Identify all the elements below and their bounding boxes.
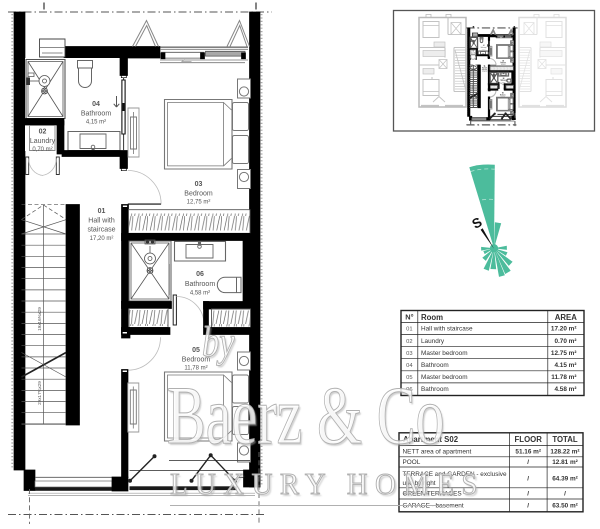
svg-text:Room: Room <box>421 313 443 322</box>
svg-text:01: 01 <box>406 327 412 333</box>
svg-text:AREA: AREA <box>555 313 577 322</box>
svg-text:12.81 m²: 12.81 m² <box>552 459 578 466</box>
svg-text:Laundry: Laundry <box>421 338 445 345</box>
svg-text:01: 01 <box>98 208 106 215</box>
svg-text:Bathroom: Bathroom <box>185 281 216 288</box>
svg-text:staircase: staircase <box>87 227 115 234</box>
svg-text:/: / <box>564 491 566 498</box>
svg-text:12,75 m²: 12,75 m² <box>187 200 211 206</box>
svg-text:17,20 m²: 17,20 m² <box>90 236 114 242</box>
svg-text:11.78 m²: 11.78 m² <box>551 374 576 381</box>
svg-text:0,70 m²: 0,70 m² <box>32 147 52 153</box>
svg-text:/: / <box>527 459 529 466</box>
svg-text:Laundry: Laundry <box>30 138 56 145</box>
svg-text:Bathroom: Bathroom <box>81 111 112 118</box>
svg-text:FLOOR: FLOOR <box>515 435 543 444</box>
svg-text:/: / <box>527 503 529 510</box>
svg-text:4.15 m²: 4.15 m² <box>554 362 576 369</box>
svg-text:17.20 m²: 17.20 m² <box>551 326 577 333</box>
svg-text:64.39 m²: 64.39 m² <box>552 476 578 483</box>
svg-text:05: 05 <box>192 347 200 354</box>
svg-text:TOTAL: TOTAL <box>552 435 578 444</box>
svg-text:02: 02 <box>39 129 47 136</box>
svg-text:/: / <box>527 491 529 498</box>
svg-text:19x16⅜x29: 19x16⅜x29 <box>37 307 42 331</box>
svg-text:12.75 m²: 12.75 m² <box>551 350 577 357</box>
svg-text:128.22 m²: 128.22 m² <box>550 449 579 456</box>
svg-text:4,58 m²: 4,58 m² <box>190 291 210 297</box>
svg-text:Hall with: Hall with <box>88 218 115 225</box>
svg-text:03: 03 <box>406 351 412 357</box>
svg-text:04: 04 <box>92 101 100 108</box>
svg-text:02: 02 <box>406 339 412 345</box>
svg-text:51.16 m²: 51.16 m² <box>515 449 541 456</box>
svg-text:/: / <box>527 476 529 483</box>
svg-text:4.58 m²: 4.58 m² <box>554 386 576 393</box>
svg-text:Master bedroom: Master bedroom <box>421 350 468 357</box>
svg-text:Hall with staircase: Hall with staircase <box>421 326 473 333</box>
svg-text:4,15 m²: 4,15 m² <box>86 120 106 126</box>
svg-text:29x17¾x29: 29x17¾x29 <box>37 381 42 405</box>
svg-text:N°: N° <box>405 313 413 322</box>
svg-text:63.50 m²: 63.50 m² <box>552 503 578 510</box>
svg-text:0.70 m²: 0.70 m² <box>554 338 576 345</box>
svg-text:06: 06 <box>196 271 204 278</box>
svg-text:03: 03 <box>195 181 203 188</box>
svg-text:Bedroom: Bedroom <box>184 191 213 198</box>
